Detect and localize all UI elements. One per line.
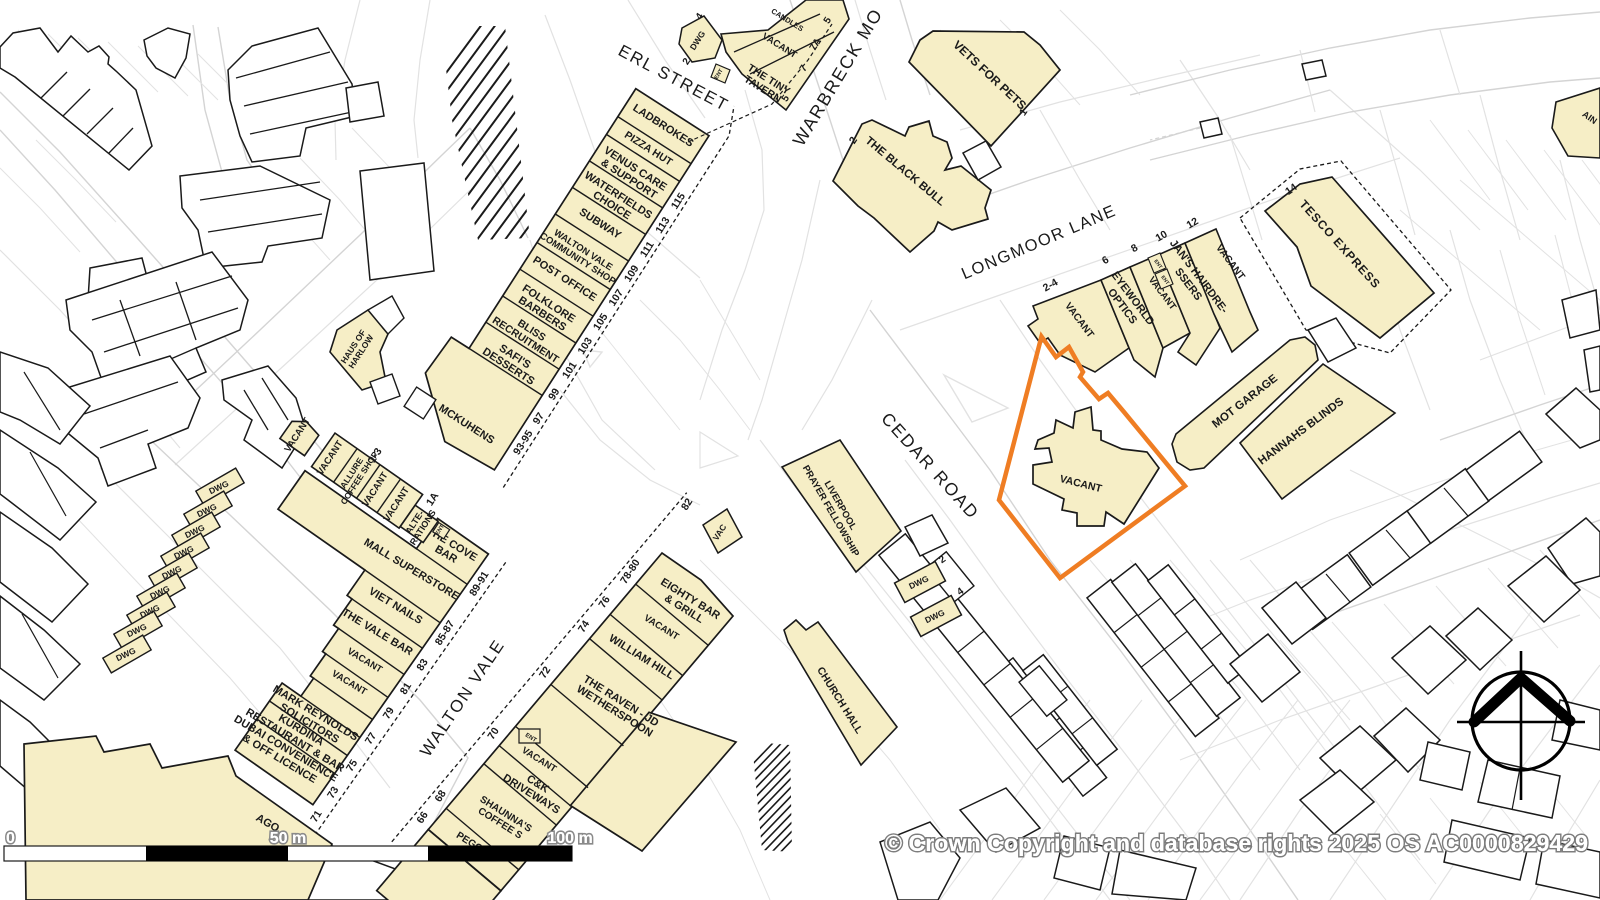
svg-text:0: 0 — [6, 830, 15, 847]
svg-text:© Crown Copyright and database: © Crown Copyright and database rights 20… — [885, 830, 1588, 856]
svg-text:100 m: 100 m — [547, 830, 592, 847]
svg-text:50 m: 50 m — [270, 830, 306, 847]
